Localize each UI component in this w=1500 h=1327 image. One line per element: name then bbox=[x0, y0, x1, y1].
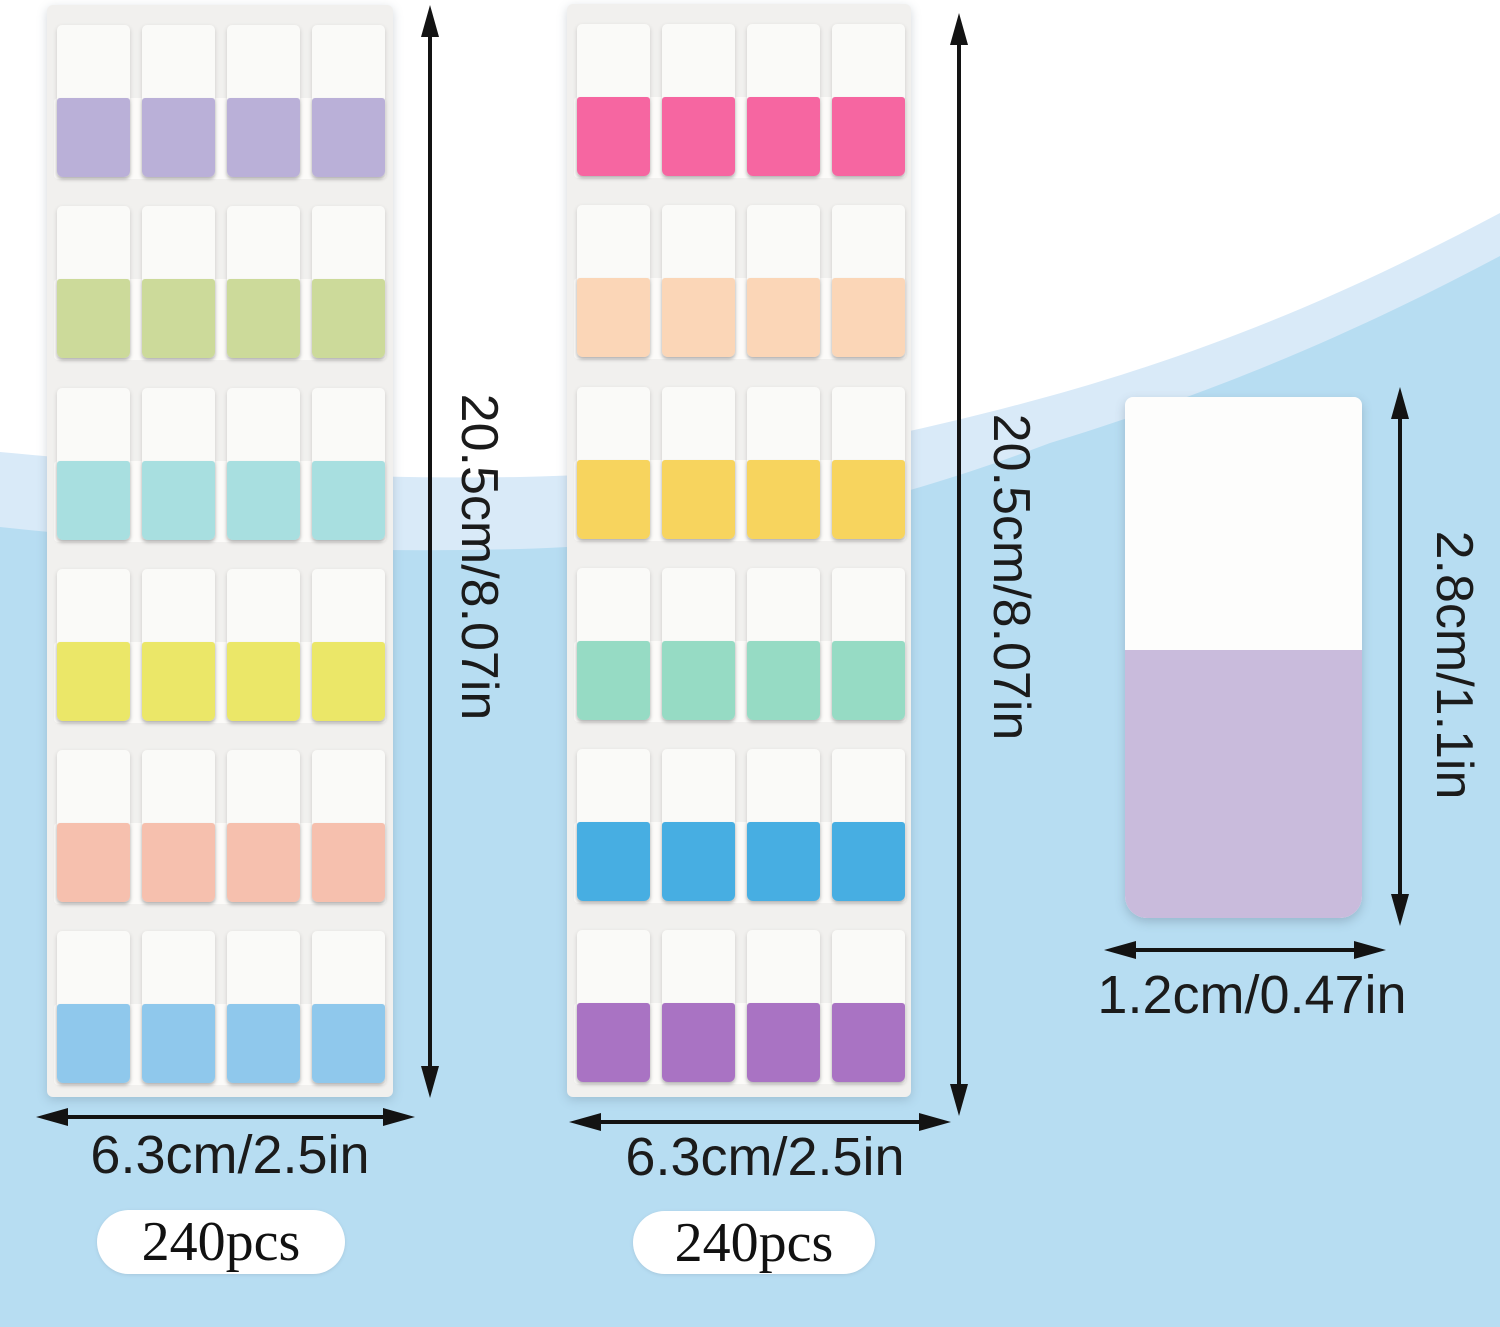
tab-color-strip bbox=[747, 1003, 820, 1082]
sheet1-count-badge: 240pcs bbox=[97, 1210, 345, 1274]
sticky-tab bbox=[227, 931, 300, 1083]
sticky-tab bbox=[577, 930, 650, 1082]
tab-color-strip bbox=[662, 1003, 735, 1082]
tab-color-strip bbox=[747, 278, 820, 357]
tab-color-strip bbox=[312, 642, 385, 721]
tab-color-strip bbox=[312, 823, 385, 902]
sticky-tab bbox=[142, 206, 215, 358]
tab-color-strip bbox=[662, 97, 735, 176]
sticky-tab bbox=[57, 569, 130, 721]
tab-color-strip bbox=[312, 279, 385, 358]
single-tab-height-label: 2.8cm/1.1in bbox=[1426, 525, 1484, 805]
sticky-tab bbox=[142, 931, 215, 1083]
sticky-tab bbox=[832, 387, 905, 539]
sticky-tab bbox=[747, 205, 820, 357]
sticky-tab bbox=[227, 206, 300, 358]
tab-color-strip bbox=[57, 1004, 130, 1083]
sticky-tab bbox=[832, 568, 905, 720]
tab-color-strip bbox=[312, 1004, 385, 1083]
sticky-tab bbox=[832, 205, 905, 357]
sticky-tab bbox=[227, 388, 300, 540]
sticky-tab bbox=[577, 387, 650, 539]
tab-color-strip bbox=[747, 460, 820, 539]
tab-color-strip bbox=[227, 279, 300, 358]
tab-color-strip bbox=[57, 642, 130, 721]
tab-color-strip bbox=[142, 642, 215, 721]
sticky-tab bbox=[662, 387, 735, 539]
tab-color-strip bbox=[662, 460, 735, 539]
sticky-tab bbox=[227, 569, 300, 721]
sheet2-width-label: 6.3cm/2.5in bbox=[565, 1126, 965, 1188]
sticky-tab bbox=[312, 750, 385, 902]
tab-color-strip bbox=[832, 460, 905, 539]
sticky-tab bbox=[57, 25, 130, 177]
tab-color-strip bbox=[832, 97, 905, 176]
tab-color-strip bbox=[227, 823, 300, 902]
tab-color-strip bbox=[662, 822, 735, 901]
sticky-tab bbox=[57, 206, 130, 358]
tab-color-strip bbox=[312, 98, 385, 177]
sticky-tab bbox=[662, 568, 735, 720]
tab-color-strip bbox=[57, 823, 130, 902]
sticky-tab bbox=[832, 24, 905, 176]
tab-color-strip bbox=[577, 460, 650, 539]
tab-color-strip bbox=[57, 98, 130, 177]
sticky-tab bbox=[662, 749, 735, 901]
sticky-tab bbox=[142, 569, 215, 721]
sticky-tab bbox=[747, 749, 820, 901]
single-tab-color bbox=[1125, 650, 1362, 918]
sticky-tab bbox=[577, 205, 650, 357]
sticky-tab bbox=[312, 25, 385, 177]
tab-color-strip bbox=[227, 642, 300, 721]
sticky-tab bbox=[577, 568, 650, 720]
sticky-tab bbox=[142, 750, 215, 902]
sticky-tab bbox=[747, 24, 820, 176]
tab-color-strip bbox=[142, 1004, 215, 1083]
sticky-tab bbox=[832, 930, 905, 1082]
sticky-tab bbox=[312, 569, 385, 721]
sticky-tab bbox=[57, 388, 130, 540]
single-tab-width-label: 1.2cm/0.47in bbox=[1052, 964, 1452, 1026]
sticky-tab bbox=[312, 388, 385, 540]
tab-color-strip bbox=[747, 822, 820, 901]
tab-color-strip bbox=[312, 461, 385, 540]
tab-color-strip bbox=[577, 641, 650, 720]
sticky-tab bbox=[57, 750, 130, 902]
tab-color-strip bbox=[662, 278, 735, 357]
tab-color-strip bbox=[662, 641, 735, 720]
sticky-tab bbox=[142, 25, 215, 177]
product-dimension-image: 20.5cm/8.07in 20.5cm/8.07in 2.8cm/1.1in … bbox=[0, 0, 1500, 1327]
tab-sheet-2 bbox=[567, 4, 911, 1097]
tab-color-strip bbox=[832, 822, 905, 901]
sheet1-height-label: 20.5cm/8.07in bbox=[451, 387, 509, 727]
sheet2-count-badge: 240pcs bbox=[633, 1211, 875, 1274]
tab-color-strip bbox=[577, 822, 650, 901]
tab-color-strip bbox=[227, 98, 300, 177]
sticky-tab bbox=[142, 388, 215, 540]
sticky-tab bbox=[577, 749, 650, 901]
tab-color-strip bbox=[227, 461, 300, 540]
tab-color-strip bbox=[747, 641, 820, 720]
tab-color-strip bbox=[747, 97, 820, 176]
sticky-tab bbox=[662, 205, 735, 357]
sticky-tab bbox=[312, 931, 385, 1083]
sticky-tab bbox=[227, 750, 300, 902]
tab-color-strip bbox=[832, 641, 905, 720]
sheet2-height-label: 20.5cm/8.07in bbox=[983, 407, 1041, 747]
tab-color-strip bbox=[142, 279, 215, 358]
sticky-tab bbox=[832, 749, 905, 901]
single-tab bbox=[1125, 397, 1362, 918]
sticky-tab bbox=[662, 930, 735, 1082]
tab-color-strip bbox=[832, 278, 905, 357]
tab-color-strip bbox=[142, 98, 215, 177]
sticky-tab bbox=[747, 568, 820, 720]
sticky-tab bbox=[577, 24, 650, 176]
sheet1-width-label: 6.3cm/2.5in bbox=[30, 1124, 430, 1186]
tab-color-strip bbox=[577, 97, 650, 176]
tab-color-strip bbox=[142, 823, 215, 902]
tab-sheet-1 bbox=[47, 5, 393, 1097]
sticky-tab bbox=[662, 24, 735, 176]
sticky-tab bbox=[57, 931, 130, 1083]
sticky-tab bbox=[747, 387, 820, 539]
tab-color-strip bbox=[57, 461, 130, 540]
sticky-tab bbox=[312, 206, 385, 358]
tab-color-strip bbox=[57, 279, 130, 358]
sticky-tab bbox=[747, 930, 820, 1082]
tab-color-strip bbox=[227, 1004, 300, 1083]
tab-color-strip bbox=[142, 461, 215, 540]
tab-color-strip bbox=[577, 1003, 650, 1082]
sticky-tab bbox=[227, 25, 300, 177]
tab-color-strip bbox=[832, 1003, 905, 1082]
tab-color-strip bbox=[577, 278, 650, 357]
